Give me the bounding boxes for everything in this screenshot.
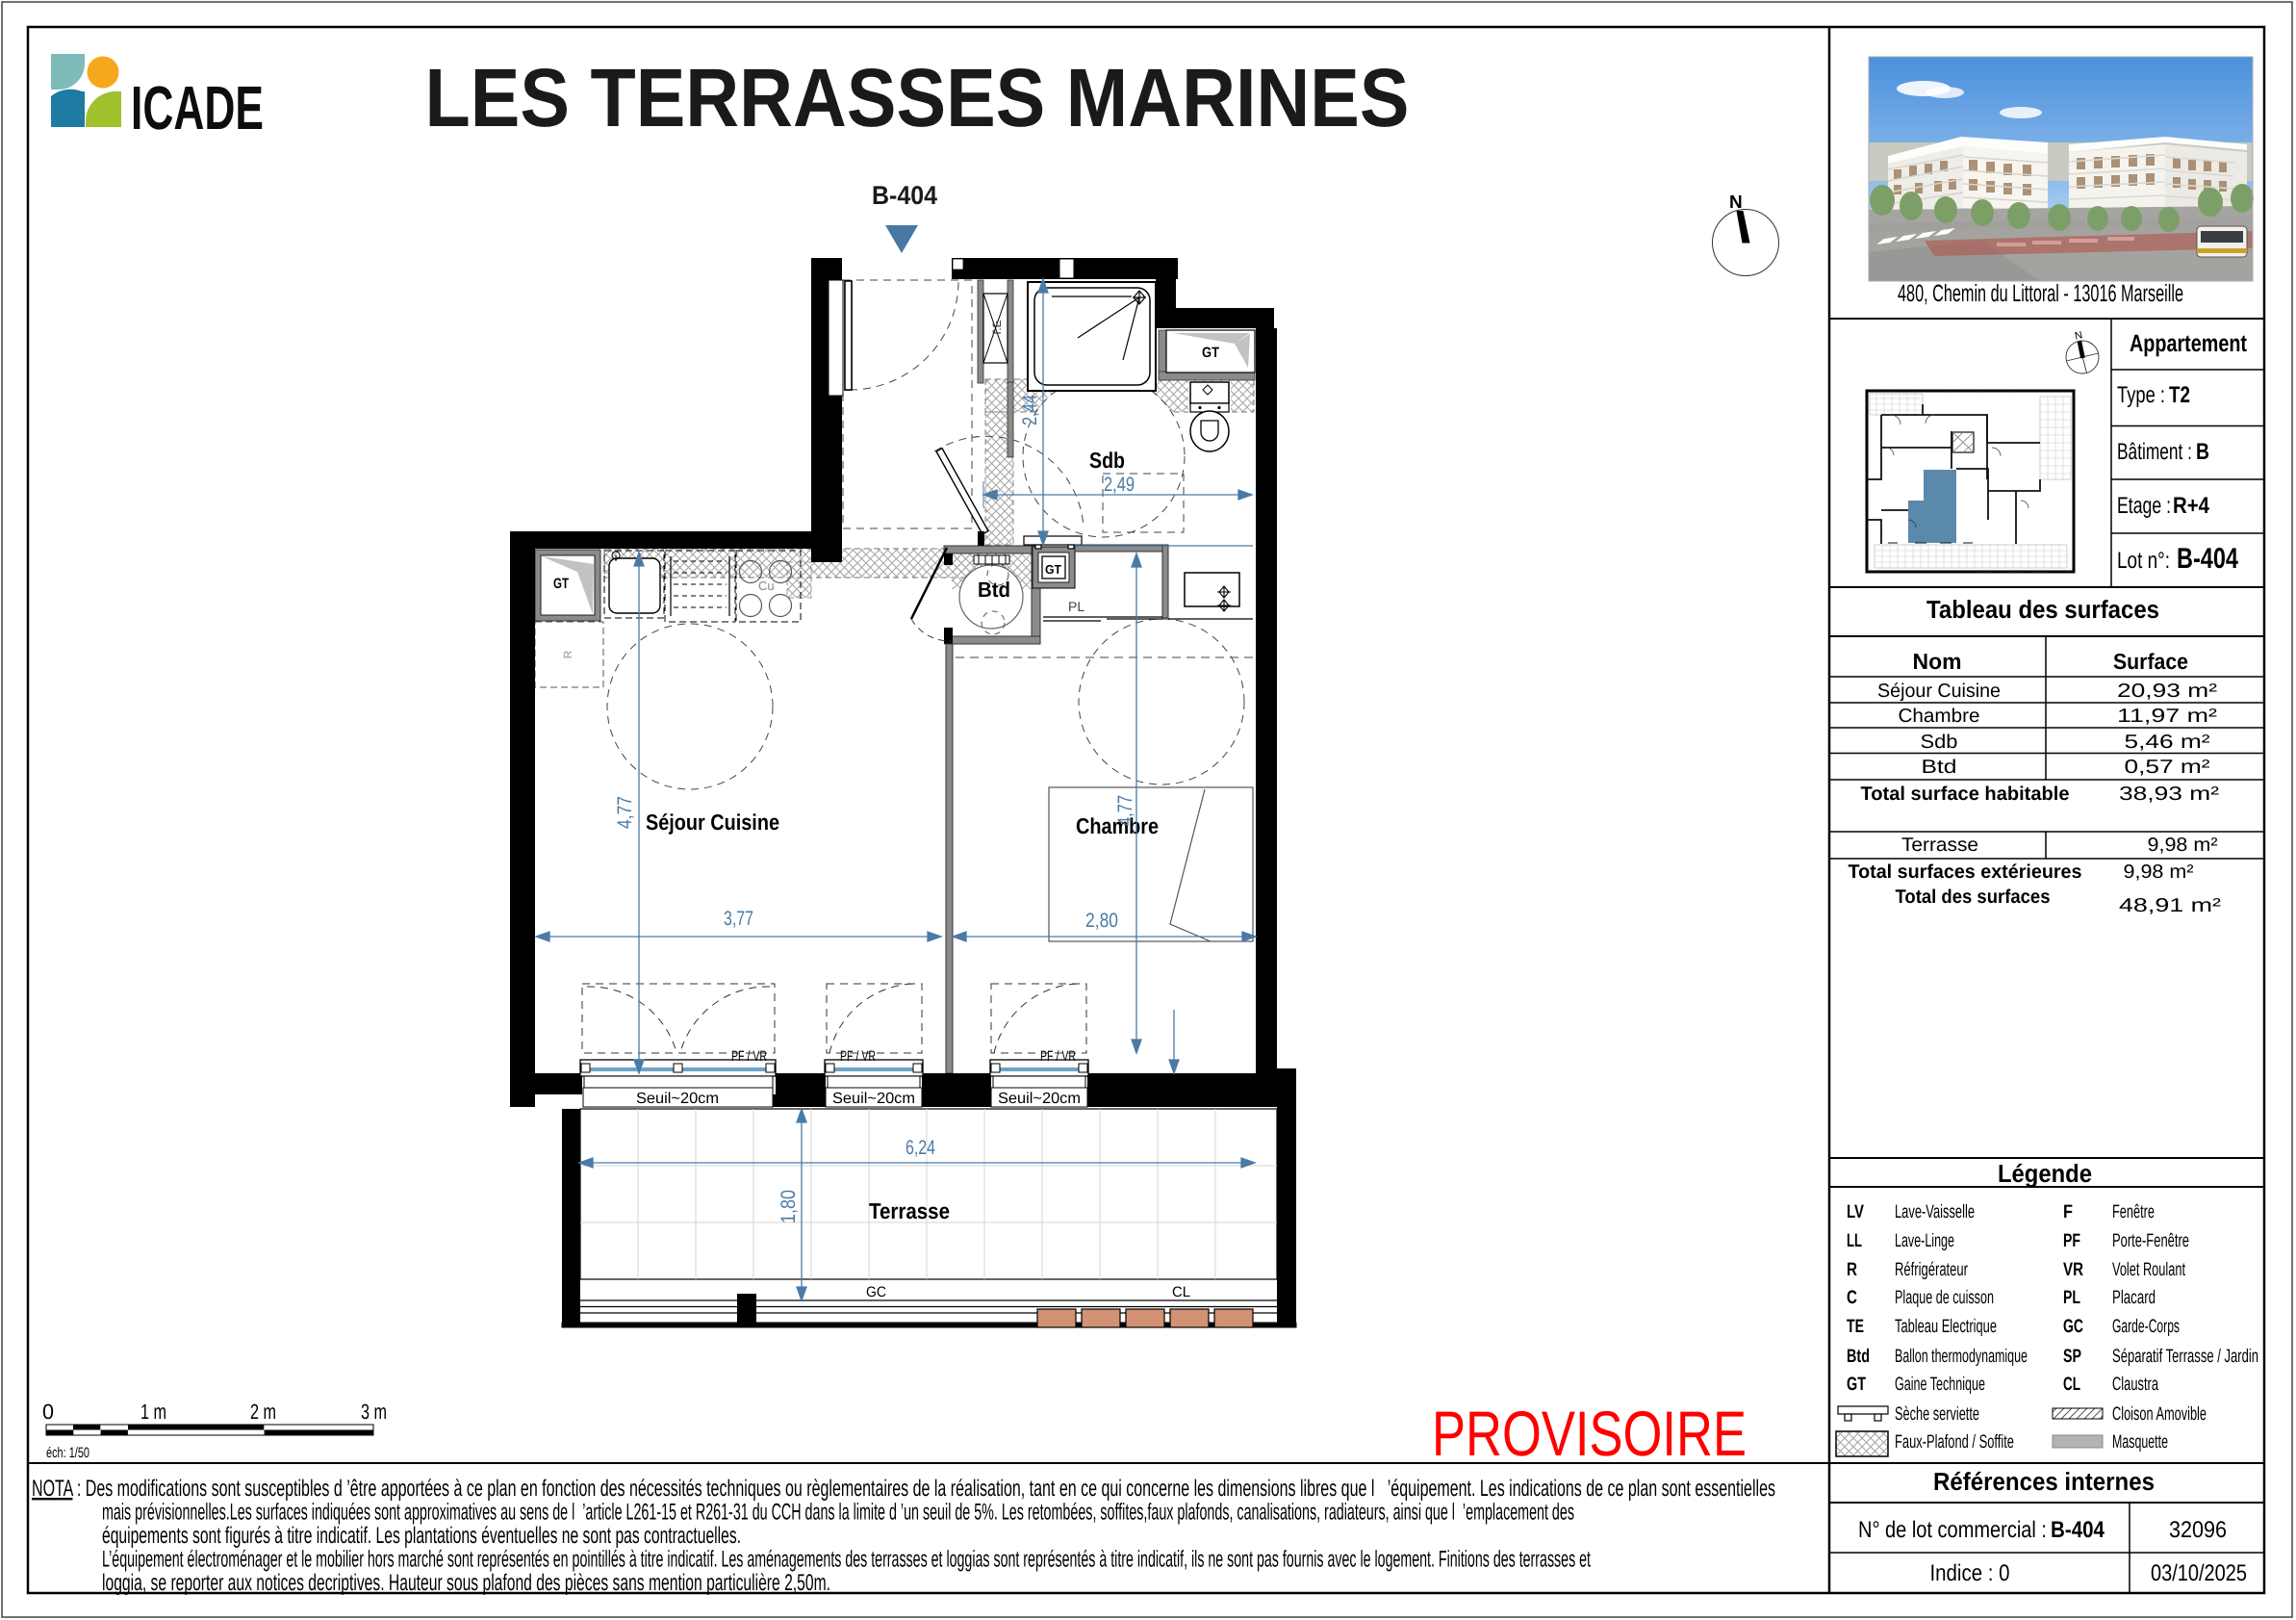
svg-text:Total surfaces extérieures: Total surfaces extérieures bbox=[1849, 861, 2082, 883]
svg-text:Lave-Linge: Lave-Linge bbox=[1895, 1230, 1954, 1251]
svg-text:R: R bbox=[1847, 1259, 1857, 1280]
svg-text:Nom: Nom bbox=[1913, 649, 1962, 674]
svg-text:PF / VR: PF / VR bbox=[840, 1048, 876, 1065]
svg-text:VR: VR bbox=[2063, 1259, 2083, 1280]
svg-text:Lave-Vaisselle: Lave-Vaisselle bbox=[1895, 1201, 1975, 1222]
svg-text:B: B bbox=[2196, 439, 2209, 465]
svg-text:Séjour Cuisine: Séjour Cuisine bbox=[646, 810, 779, 835]
svg-text:Chambre: Chambre bbox=[1899, 706, 1980, 727]
svg-text:Faux-Plafond / Soffite: Faux-Plafond / Soffite bbox=[1895, 1431, 2014, 1453]
svg-text:4,77: 4,77 bbox=[614, 796, 636, 829]
svg-text:1 m: 1 m bbox=[140, 1400, 166, 1424]
svg-text:ICADE: ICADE bbox=[131, 73, 264, 142]
svg-text:Légende: Légende bbox=[1998, 1159, 2092, 1188]
svg-text:PROVISOIRE: PROVISOIRE bbox=[1432, 1398, 1747, 1469]
svg-text:CL: CL bbox=[2063, 1374, 2080, 1395]
svg-text:Seuil~20cm: Seuil~20cm bbox=[832, 1091, 915, 1107]
svg-text:0,57 m²: 0,57 m² bbox=[2125, 757, 2210, 778]
svg-text:Séjour Cuisine: Séjour Cuisine bbox=[1877, 681, 2001, 702]
svg-text:F: F bbox=[2063, 1201, 2073, 1222]
svg-text:Cloison Amovible: Cloison Amovible bbox=[2112, 1403, 2207, 1425]
svg-text:9,98 m²: 9,98 m² bbox=[2148, 835, 2218, 856]
svg-text:Surface: Surface bbox=[2113, 649, 2188, 674]
svg-text:SP: SP bbox=[2063, 1346, 2081, 1367]
svg-text:C: C bbox=[1847, 1287, 1857, 1308]
svg-text:6,24: 6,24 bbox=[906, 1137, 935, 1159]
svg-text:LES TERRASSES MARINES: LES TERRASSES MARINES bbox=[425, 52, 1410, 144]
svg-text:loggia, se reporter aux notice: loggia, se reporter aux notices decripti… bbox=[102, 1570, 830, 1596]
svg-text:T2: T2 bbox=[2169, 382, 2190, 408]
svg-text:Seuil~20cm: Seuil~20cm bbox=[636, 1091, 719, 1107]
svg-text:Tableau des surfaces: Tableau des surfaces bbox=[1926, 595, 2159, 624]
svg-text:GC: GC bbox=[866, 1284, 886, 1300]
svg-text:Références internes: Références internes bbox=[1933, 1467, 2155, 1496]
svg-text:PL: PL bbox=[2063, 1287, 2080, 1308]
svg-text:B-404: B-404 bbox=[2177, 543, 2238, 575]
svg-text:Seuil~20cm: Seuil~20cm bbox=[998, 1091, 1081, 1107]
svg-text:2 m: 2 m bbox=[250, 1400, 276, 1424]
svg-text:Total surface habitable: Total surface habitable bbox=[1861, 784, 2070, 805]
svg-text:Garde-Corps: Garde-Corps bbox=[2112, 1316, 2180, 1337]
svg-text:N: N bbox=[1729, 193, 1743, 213]
svg-text:Indice : 0: Indice : 0 bbox=[1930, 1560, 2010, 1586]
svg-text:5,46 m²: 5,46 m² bbox=[2125, 732, 2210, 753]
svg-text:480, Chemin du Littoral - 1301: 480, Chemin du Littoral - 13016 Marseill… bbox=[1898, 280, 2183, 307]
svg-text:Type :: Type : bbox=[2117, 382, 2165, 408]
svg-text:03/10/2025: 03/10/2025 bbox=[2151, 1560, 2247, 1586]
svg-text:Terrasse: Terrasse bbox=[1901, 835, 1978, 856]
svg-text:Ballon thermodynamique: Ballon thermodynamique bbox=[1895, 1346, 2028, 1367]
svg-text:3,77: 3,77 bbox=[724, 908, 753, 930]
svg-text:4,77: 4,77 bbox=[1114, 795, 1136, 826]
svg-text:9,98 m²: 9,98 m² bbox=[2124, 861, 2194, 883]
svg-text:B-404: B-404 bbox=[872, 181, 937, 210]
svg-text:Volet Roulant: Volet Roulant bbox=[2112, 1259, 2185, 1280]
svg-text:éch: 1/50: éch: 1/50 bbox=[46, 1445, 89, 1461]
svg-text:Bâtiment :: Bâtiment : bbox=[2117, 439, 2192, 465]
svg-text:48,91 m²: 48,91 m² bbox=[2119, 895, 2221, 916]
svg-text:LL: LL bbox=[1847, 1230, 1862, 1251]
svg-text:Séparatif Terrasse / Jardin: Séparatif Terrasse / Jardin bbox=[2112, 1346, 2258, 1367]
svg-text:Masquette: Masquette bbox=[2112, 1431, 2168, 1453]
svg-text:Placard: Placard bbox=[2112, 1287, 2156, 1308]
svg-text:Porte-Fenêtre: Porte-Fenêtre bbox=[2112, 1230, 2189, 1251]
svg-text:L’équipement électroménager et: L’équipement électroménager et le mobili… bbox=[102, 1547, 1591, 1573]
svg-text:Cu: Cu bbox=[758, 579, 775, 593]
svg-text:mais prévisionnelles.Les surfa: mais prévisionnelles.Les surfaces indiqu… bbox=[102, 1500, 1574, 1526]
svg-text:Réfrigérateur: Réfrigérateur bbox=[1895, 1259, 1968, 1280]
svg-text:GT: GT bbox=[1045, 562, 1061, 577]
svg-text:LV: LV bbox=[1847, 1201, 1864, 1222]
svg-text:GT: GT bbox=[1847, 1374, 1866, 1395]
svg-text:Btd: Btd bbox=[1922, 757, 1957, 778]
svg-text:0: 0 bbox=[42, 1400, 54, 1424]
svg-text:équipements sont figurés à tit: équipements sont figurés à titre indicat… bbox=[102, 1523, 741, 1549]
svg-text:2,80: 2,80 bbox=[1085, 910, 1118, 932]
svg-text:GT: GT bbox=[553, 576, 569, 592]
svg-text:20,93 m²: 20,93 m² bbox=[2117, 681, 2217, 702]
svg-text:Appartement: Appartement bbox=[2130, 330, 2248, 357]
svg-text:2,49: 2,49 bbox=[1104, 474, 1135, 496]
svg-text:TE: TE bbox=[1847, 1316, 1864, 1337]
svg-text:N° de lot commercial :: N° de lot commercial : bbox=[1858, 1517, 2047, 1543]
svg-text:Gaine Technique: Gaine Technique bbox=[1895, 1374, 1985, 1395]
svg-text:Plaque de cuisson: Plaque de cuisson bbox=[1895, 1287, 1994, 1308]
svg-text:Sèche serviette: Sèche serviette bbox=[1895, 1403, 1979, 1425]
svg-text:R: R bbox=[561, 650, 574, 658]
svg-text:PF: PF bbox=[2063, 1230, 2080, 1251]
svg-text:1,80: 1,80 bbox=[778, 1190, 800, 1223]
svg-text:2,44: 2,44 bbox=[1019, 395, 1041, 425]
svg-text:GC: GC bbox=[2063, 1316, 2083, 1337]
svg-text:Terrasse: Terrasse bbox=[869, 1198, 950, 1223]
svg-text:Lot n°:: Lot n°: bbox=[2117, 548, 2170, 574]
svg-text:Btd: Btd bbox=[978, 578, 1010, 602]
svg-text:PL: PL bbox=[1068, 599, 1084, 614]
svg-text:Sdb: Sdb bbox=[1921, 732, 1958, 753]
svg-text:Tableau Electrique: Tableau Electrique bbox=[1895, 1316, 1997, 1337]
svg-text:11,97 m²: 11,97 m² bbox=[2117, 706, 2217, 727]
svg-text:Etage :: Etage : bbox=[2117, 493, 2171, 519]
svg-text:NOTA : Des modifications sont: NOTA : Des modifications sont susceptibl… bbox=[32, 1476, 1775, 1502]
svg-text:Sdb: Sdb bbox=[1089, 448, 1125, 473]
svg-text:Claustra: Claustra bbox=[2112, 1374, 2158, 1395]
svg-text:38,93 m²: 38,93 m² bbox=[2119, 784, 2219, 805]
svg-text:CL: CL bbox=[1172, 1284, 1190, 1300]
svg-text:B-404: B-404 bbox=[2051, 1517, 2105, 1543]
svg-text:3 m: 3 m bbox=[361, 1400, 387, 1424]
svg-text:PF / VR: PF / VR bbox=[1040, 1048, 1076, 1065]
svg-text:32096: 32096 bbox=[2169, 1517, 2227, 1543]
svg-text:Total des surfaces: Total des surfaces bbox=[1896, 887, 2051, 908]
svg-text:T.E: T.E bbox=[990, 320, 1004, 336]
svg-text:R+4: R+4 bbox=[2173, 493, 2210, 519]
svg-text:Fenêtre: Fenêtre bbox=[2112, 1201, 2155, 1222]
svg-text:PF / VR: PF / VR bbox=[731, 1048, 767, 1065]
svg-text:GT: GT bbox=[1202, 345, 1219, 361]
svg-text:Btd: Btd bbox=[1847, 1346, 1870, 1367]
